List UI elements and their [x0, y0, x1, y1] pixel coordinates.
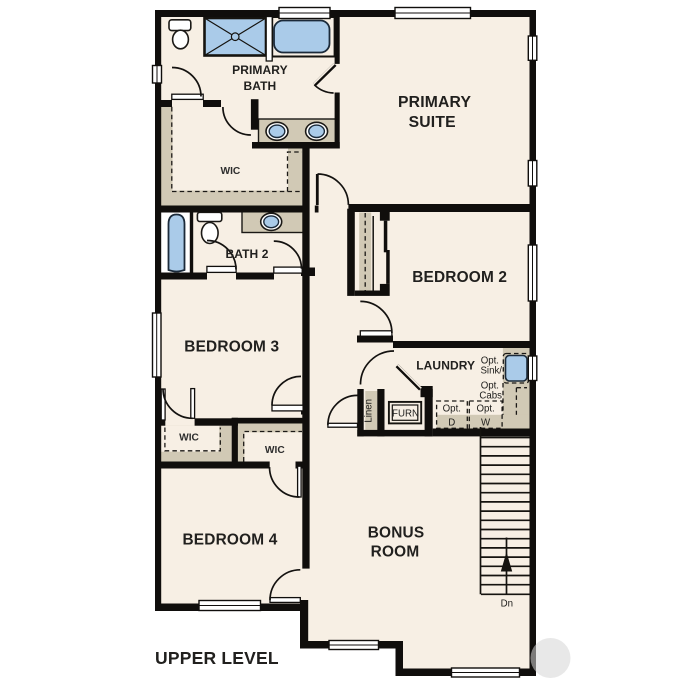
svg-text:BEDROOM 2: BEDROOM 2: [412, 269, 507, 286]
svg-text:Opt.: Opt.: [443, 404, 461, 415]
svg-text:BATH 2: BATH 2: [225, 247, 268, 261]
svg-text:WIC: WIC: [265, 445, 285, 456]
svg-text:Sink/: Sink/: [480, 366, 502, 377]
svg-text:FURN: FURN: [392, 409, 419, 420]
svg-text:WIC: WIC: [220, 166, 240, 177]
svg-text:Dn: Dn: [501, 598, 513, 609]
svg-text:BEDROOM 4: BEDROOM 4: [182, 532, 277, 549]
svg-text:PRIMARY: PRIMARY: [398, 94, 471, 111]
svg-text:D: D: [448, 418, 455, 429]
svg-text:BEDROOM 3: BEDROOM 3: [184, 339, 279, 356]
svg-text:Linen: Linen: [363, 399, 374, 423]
svg-text:W: W: [481, 418, 491, 429]
svg-text:BONUS: BONUS: [368, 525, 425, 542]
svg-text:PRIMARY: PRIMARY: [232, 63, 288, 77]
svg-text:UPPER LEVEL: UPPER LEVEL: [155, 648, 279, 668]
svg-text:LAUNDRY: LAUNDRY: [416, 358, 475, 372]
svg-text:Opt.: Opt.: [476, 404, 494, 415]
svg-text:Cabs: Cabs: [479, 391, 502, 402]
svg-text:BATH: BATH: [243, 79, 276, 93]
svg-text:ROOM: ROOM: [371, 544, 420, 561]
svg-text:WIC: WIC: [179, 432, 199, 443]
svg-text:SUITE: SUITE: [409, 114, 456, 131]
